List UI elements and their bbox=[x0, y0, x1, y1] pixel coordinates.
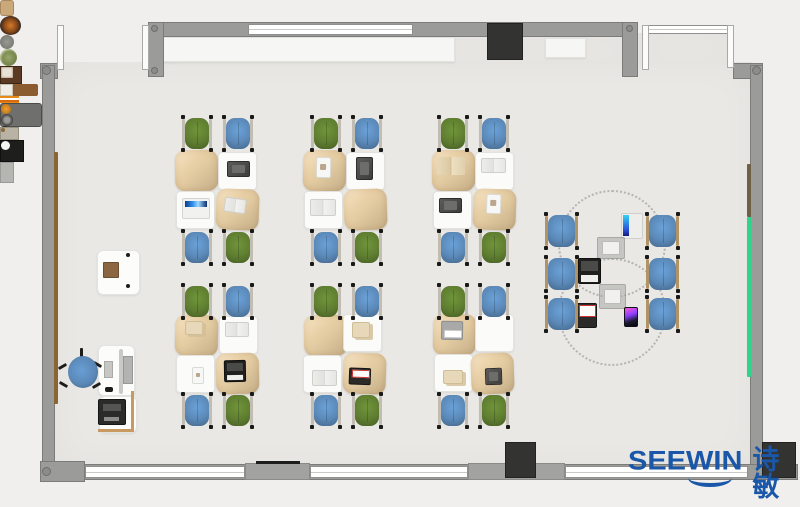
chair-foot bbox=[478, 262, 482, 266]
desk-trim bbox=[131, 391, 134, 432]
chair-frame-bar bbox=[465, 233, 468, 262]
chair-foot bbox=[478, 115, 482, 119]
teacher-keyboard bbox=[104, 361, 113, 378]
chair-foot bbox=[506, 229, 510, 233]
chair-frame-bar bbox=[676, 216, 679, 246]
chair-foot bbox=[465, 115, 469, 119]
device-table-laptop-black bbox=[578, 258, 601, 284]
chair-frame-bar bbox=[209, 396, 212, 425]
student-desk-tan bbox=[303, 150, 347, 192]
student-chair-green bbox=[479, 231, 509, 264]
student-chair-green bbox=[479, 394, 509, 427]
chair-seat bbox=[226, 118, 250, 149]
chair-foot bbox=[676, 295, 680, 299]
chair-foot bbox=[222, 283, 226, 287]
chair-foot bbox=[310, 283, 314, 287]
chair-foot bbox=[222, 148, 226, 152]
chair-seat bbox=[482, 118, 506, 149]
chair-foot bbox=[338, 115, 342, 119]
chair-frame-bar bbox=[465, 287, 468, 316]
chair-foot bbox=[181, 283, 185, 287]
chair-foot bbox=[209, 283, 213, 287]
chair-frame-bar bbox=[379, 119, 382, 148]
chair-foot bbox=[575, 295, 579, 299]
chair-foot bbox=[645, 246, 649, 250]
chair-foot bbox=[310, 115, 314, 119]
chair-foot bbox=[437, 425, 441, 429]
chair-foot bbox=[506, 392, 510, 396]
chair-frame-bar bbox=[250, 233, 253, 262]
chair-seat bbox=[226, 232, 250, 263]
student-chair-blue bbox=[311, 231, 341, 264]
chair-foot bbox=[209, 148, 213, 152]
chair-foot bbox=[222, 425, 226, 429]
chair-foot bbox=[465, 283, 469, 287]
chair-foot bbox=[351, 148, 355, 152]
chair-foot bbox=[250, 283, 254, 287]
chair-frame-bar bbox=[379, 396, 382, 425]
chair-frame-bar bbox=[676, 259, 679, 289]
chair-foot bbox=[250, 229, 254, 233]
chair-seat bbox=[482, 286, 506, 317]
student-chair-green bbox=[223, 394, 253, 427]
student-desk-white bbox=[219, 316, 258, 354]
chair-foot bbox=[351, 283, 355, 287]
chair-foot bbox=[222, 262, 226, 266]
chair-frame-bar bbox=[250, 287, 253, 316]
chair-foot bbox=[222, 316, 226, 320]
chair-frame-bar bbox=[379, 287, 382, 316]
chair-foot bbox=[310, 148, 314, 152]
chair-foot bbox=[645, 255, 649, 259]
chair-foot bbox=[676, 289, 680, 293]
chair-foot bbox=[645, 329, 649, 333]
chair-seat bbox=[355, 118, 379, 149]
student-desk-tan bbox=[343, 188, 387, 230]
chair-foot bbox=[338, 316, 342, 320]
chair-foot bbox=[544, 212, 548, 216]
desk-item-tablet bbox=[227, 161, 250, 177]
desk-item-book-tan bbox=[437, 157, 465, 175]
brand-logo: SEEWIN 诗敏 bbox=[628, 447, 800, 501]
chair-foot bbox=[222, 392, 226, 396]
desk-item-laptop-white bbox=[349, 367, 372, 385]
chair-foot bbox=[181, 229, 185, 233]
chair-foot bbox=[379, 425, 383, 429]
chair-frame-bar bbox=[209, 233, 212, 262]
chair-foot bbox=[544, 255, 548, 259]
chair-foot bbox=[465, 425, 469, 429]
chair-frame-bar bbox=[209, 287, 212, 316]
chair-foot bbox=[544, 289, 548, 293]
chair-seat bbox=[314, 232, 338, 263]
chair-foot bbox=[465, 148, 469, 152]
desk-item-laptop-blue bbox=[182, 198, 210, 219]
student-chair-blue bbox=[223, 285, 253, 318]
chair-foot bbox=[506, 425, 510, 429]
chair-foot bbox=[310, 392, 314, 396]
chair-foot bbox=[310, 425, 314, 429]
student-desk-tan bbox=[432, 150, 475, 191]
chair-foot bbox=[478, 425, 482, 429]
chair-foot bbox=[676, 212, 680, 216]
chair-foot bbox=[465, 316, 469, 320]
chair-foot bbox=[676, 329, 680, 333]
chair-foot bbox=[181, 316, 185, 320]
chair-foot bbox=[250, 115, 254, 119]
student-chair-blue bbox=[311, 394, 341, 427]
collab-chair-blue bbox=[545, 214, 578, 248]
chair-frame-bar bbox=[506, 233, 509, 262]
desk-item-tablet bbox=[485, 368, 503, 386]
desk-item-tablet bbox=[356, 157, 373, 180]
desk-item-book bbox=[223, 196, 247, 214]
chair-foot bbox=[181, 115, 185, 119]
chair-leg bbox=[59, 381, 68, 388]
chair-foot bbox=[222, 229, 226, 233]
chair-foot bbox=[310, 316, 314, 320]
chair-seat bbox=[441, 232, 465, 263]
chair-leg bbox=[58, 363, 67, 370]
desk-item-tablet bbox=[439, 198, 462, 213]
chair-foot bbox=[575, 289, 579, 293]
chair-seat bbox=[482, 395, 506, 426]
chair-foot bbox=[181, 148, 185, 152]
chair-foot bbox=[351, 262, 355, 266]
desk-item-book bbox=[310, 199, 336, 216]
chair-foot bbox=[575, 212, 579, 216]
student-chair-blue bbox=[223, 117, 253, 150]
chair-foot bbox=[338, 425, 342, 429]
desk-item-paper-tan bbox=[185, 321, 203, 335]
student-desk-white bbox=[343, 314, 382, 352]
student-chair-blue bbox=[438, 231, 468, 264]
student-chair-green bbox=[311, 117, 341, 150]
student-chair-blue bbox=[479, 285, 509, 318]
chair-foot bbox=[575, 255, 579, 259]
chair-foot bbox=[209, 316, 213, 320]
chair-seat bbox=[68, 356, 98, 388]
chair-seat bbox=[482, 232, 506, 263]
chair-foot bbox=[506, 148, 510, 152]
collab-chair-blue bbox=[545, 257, 578, 291]
chair-frame-bar bbox=[209, 119, 212, 148]
student-chair-green bbox=[223, 231, 253, 264]
student-desk-white bbox=[434, 354, 473, 392]
furniture-layer bbox=[0, 0, 800, 507]
collab-chair-blue bbox=[545, 297, 578, 331]
cabinet-knob bbox=[126, 253, 130, 257]
chair-foot bbox=[478, 229, 482, 233]
chair-foot bbox=[338, 229, 342, 233]
chair-foot bbox=[506, 115, 510, 119]
chair-seat bbox=[355, 395, 379, 426]
chair-foot bbox=[351, 115, 355, 119]
chair-seat bbox=[548, 215, 575, 247]
desk-item-book bbox=[312, 370, 337, 386]
chair-foot bbox=[437, 316, 441, 320]
student-chair-green bbox=[438, 117, 468, 150]
student-desk-white bbox=[218, 152, 257, 190]
student-desk-tan bbox=[342, 352, 386, 394]
chair-seat bbox=[355, 232, 379, 263]
chair-seat bbox=[185, 395, 209, 426]
chair-foot bbox=[465, 262, 469, 266]
student-chair-blue bbox=[438, 394, 468, 427]
student-chair-green bbox=[182, 117, 212, 150]
chair-seat bbox=[649, 298, 676, 330]
collab-chair-blue bbox=[646, 257, 679, 291]
chair-foot bbox=[478, 316, 482, 320]
chair-foot bbox=[645, 295, 649, 299]
chair-foot bbox=[379, 115, 383, 119]
student-desk-tan bbox=[470, 352, 514, 394]
chair-foot bbox=[544, 329, 548, 333]
student-desk-tan bbox=[304, 315, 348, 357]
chair-foot bbox=[478, 283, 482, 287]
chair-seat bbox=[185, 118, 209, 149]
chair-foot bbox=[310, 262, 314, 266]
student-desk-tan bbox=[175, 315, 219, 357]
device-table-phone bbox=[624, 307, 638, 327]
chair-foot bbox=[209, 392, 213, 396]
device-table-stand-blue bbox=[621, 213, 643, 239]
chair-foot bbox=[465, 392, 469, 396]
chair-foot bbox=[478, 148, 482, 152]
chair-foot bbox=[250, 425, 254, 429]
chair-seat bbox=[441, 395, 465, 426]
chair-frame-bar bbox=[575, 216, 578, 246]
chair-foot bbox=[437, 148, 441, 152]
student-desk-white bbox=[346, 152, 385, 190]
chair-foot bbox=[676, 246, 680, 250]
chair-frame-bar bbox=[250, 396, 253, 425]
chair-foot bbox=[250, 262, 254, 266]
chair-foot bbox=[209, 115, 213, 119]
chair-foot bbox=[379, 392, 383, 396]
chair-foot bbox=[181, 392, 185, 396]
desk-item-device-white bbox=[441, 321, 463, 340]
chair-foot bbox=[506, 262, 510, 266]
chair-seat bbox=[185, 286, 209, 317]
desk-item-paper bbox=[316, 157, 331, 178]
chair-seat bbox=[548, 258, 575, 290]
chair-foot bbox=[506, 316, 510, 320]
brand-cjk: 诗敏 bbox=[752, 447, 800, 501]
cabinet-knob bbox=[126, 284, 130, 288]
chair-frame-bar bbox=[338, 233, 341, 262]
chair-foot bbox=[437, 392, 441, 396]
chair-foot bbox=[310, 229, 314, 233]
chair-foot bbox=[575, 246, 579, 250]
desk-item-book bbox=[225, 322, 249, 337]
student-desk-tan bbox=[216, 353, 260, 395]
chair-foot bbox=[250, 392, 254, 396]
desk-trim bbox=[98, 429, 134, 432]
chair-foot bbox=[437, 115, 441, 119]
chair-foot bbox=[209, 262, 213, 266]
chair-foot bbox=[379, 316, 383, 320]
chair-frame-bar bbox=[338, 119, 341, 148]
student-desk-white bbox=[176, 355, 215, 393]
desk-item-paper bbox=[192, 367, 204, 384]
chair-foot bbox=[645, 212, 649, 216]
collab-chair-blue bbox=[646, 214, 679, 248]
student-chair-green bbox=[352, 231, 382, 264]
chair-foot bbox=[544, 246, 548, 250]
student-chair-green bbox=[438, 285, 468, 318]
chair-foot bbox=[575, 329, 579, 333]
device-table-pad-grey bbox=[597, 237, 625, 259]
student-chair-blue bbox=[182, 231, 212, 264]
chair-seat bbox=[649, 215, 676, 247]
desk-item-book bbox=[481, 158, 506, 173]
chair-frame-bar bbox=[506, 287, 509, 316]
chair-foot bbox=[506, 283, 510, 287]
chair-seat bbox=[226, 286, 250, 317]
chair-frame-bar bbox=[338, 287, 341, 316]
chair-foot bbox=[351, 229, 355, 233]
chair-foot bbox=[437, 229, 441, 233]
device-table-pad-grey bbox=[599, 284, 626, 309]
chair-foot bbox=[676, 255, 680, 259]
cabinet-book bbox=[103, 262, 119, 278]
chair-foot bbox=[209, 229, 213, 233]
chair-seat bbox=[226, 395, 250, 426]
chair-foot bbox=[379, 262, 383, 266]
student-desk-white bbox=[304, 191, 343, 229]
device-table-laptop-white bbox=[576, 303, 597, 328]
teacher-mouse bbox=[105, 387, 113, 392]
chair-foot bbox=[379, 148, 383, 152]
student-desk-tan bbox=[472, 188, 516, 230]
floorplan-canvas: SEEWIN 诗敏 bbox=[0, 0, 800, 507]
chair-foot bbox=[544, 295, 548, 299]
printer bbox=[98, 399, 126, 425]
chair-frame-bar bbox=[379, 233, 382, 262]
chair-frame-bar bbox=[465, 396, 468, 425]
chair-seat bbox=[441, 286, 465, 317]
chair-seat bbox=[314, 286, 338, 317]
student-chair-blue bbox=[182, 394, 212, 427]
chair-seat bbox=[185, 232, 209, 263]
chair-foot bbox=[351, 316, 355, 320]
chair-frame-bar bbox=[575, 259, 578, 289]
student-chair-blue bbox=[352, 117, 382, 150]
desk-item-paper-tan bbox=[352, 322, 370, 338]
chair-foot bbox=[351, 425, 355, 429]
chair-frame-bar bbox=[676, 299, 679, 329]
chair-foot bbox=[209, 425, 213, 429]
chair-frame-bar bbox=[506, 119, 509, 148]
collab-chair-blue bbox=[646, 297, 679, 331]
chair-foot bbox=[338, 392, 342, 396]
chair-frame-bar bbox=[465, 119, 468, 148]
chair-foot bbox=[437, 262, 441, 266]
chair-frame-bar bbox=[506, 396, 509, 425]
chair-foot bbox=[351, 392, 355, 396]
student-chair-green bbox=[182, 285, 212, 318]
desk-item-paper-tan bbox=[443, 370, 463, 384]
student-desk-white bbox=[176, 191, 215, 229]
chair-foot bbox=[379, 229, 383, 233]
chair-frame-bar bbox=[250, 119, 253, 148]
chair-foot bbox=[250, 148, 254, 152]
chair-seat bbox=[548, 298, 575, 330]
chair-foot bbox=[338, 262, 342, 266]
chair-foot bbox=[338, 148, 342, 152]
desk-item-paper bbox=[486, 194, 502, 215]
desk-item-laptop-black bbox=[224, 360, 246, 382]
chair-frame-bar bbox=[338, 396, 341, 425]
chair-seat bbox=[314, 118, 338, 149]
chair-seat bbox=[355, 286, 379, 317]
chair-seat bbox=[441, 118, 465, 149]
student-chair-blue bbox=[479, 117, 509, 150]
chair-foot bbox=[465, 229, 469, 233]
chair-frame-bar bbox=[575, 299, 578, 329]
chair-foot bbox=[478, 392, 482, 396]
student-chair-green bbox=[352, 394, 382, 427]
student-desk-white bbox=[303, 355, 342, 393]
chair-foot bbox=[222, 115, 226, 119]
student-desk-white bbox=[433, 191, 472, 229]
student-desk-white bbox=[475, 152, 514, 190]
chair-seat bbox=[314, 395, 338, 426]
student-chair-blue bbox=[352, 285, 382, 318]
chair-foot bbox=[250, 316, 254, 320]
teacher-chair bbox=[66, 354, 100, 390]
chair-foot bbox=[181, 262, 185, 266]
chair-foot bbox=[437, 283, 441, 287]
student-desk-tan bbox=[215, 188, 259, 230]
chair-foot bbox=[645, 289, 649, 293]
chair-foot bbox=[338, 283, 342, 287]
chair-foot bbox=[379, 283, 383, 287]
chair-foot bbox=[181, 425, 185, 429]
student-chair-green bbox=[311, 285, 341, 318]
student-desk-tan bbox=[175, 150, 219, 192]
teacher-monitor bbox=[123, 356, 133, 384]
chair-seat bbox=[649, 258, 676, 290]
brand-smile-arc bbox=[688, 469, 732, 487]
